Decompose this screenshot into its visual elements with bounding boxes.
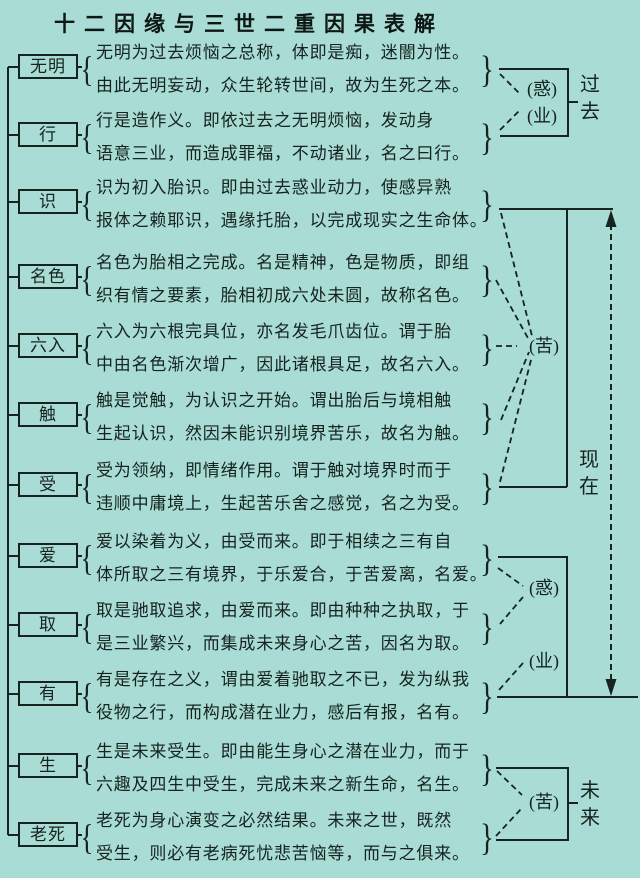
- arrowhead-up-icon: [606, 210, 617, 227]
- desc-line: 由此无明妄动，众生轮转世间，故为生死之本。: [96, 75, 470, 97]
- desc-line: 体所取之三有境界，于乐爱合，于苦爱离，名爱。: [96, 564, 488, 586]
- open-brace-icon: {: [80, 257, 94, 301]
- period-future-label: 未来: [578, 778, 602, 832]
- close-brace-icon: }: [480, 396, 495, 440]
- close-brace-icon: }: [480, 537, 495, 581]
- term-box-sheng: 生: [18, 753, 78, 778]
- dashed-links: [496, 74, 532, 836]
- desc-line: 役物之行，而构成潜在业力，感后有报，名有。: [96, 702, 470, 724]
- desc-line: 受为领纳，即情绪作用。谓于触对境界时而于: [96, 460, 452, 482]
- desc-line: 语意三业，而造成罪福，不动诸业，名之曰行。: [96, 143, 470, 165]
- term-label: 六入: [30, 337, 66, 354]
- desc-line: 无明为过去烦恼之总称，体即是痴，迷闇为性。: [96, 42, 470, 64]
- open-brace-icon: {: [80, 326, 94, 370]
- arrowhead-down-icon: [606, 679, 617, 696]
- desc-line: 是三业繁兴，而集成未来身心之苦，因名为取。: [96, 633, 470, 655]
- close-brace-icon: }: [480, 116, 495, 160]
- desc-line: 织有情之要素，胎相初成六处未圆，故称名色。: [96, 285, 470, 307]
- present-delusion-label: (惑): [518, 577, 570, 599]
- open-brace-icon: {: [80, 465, 94, 509]
- desc-line: 生是未来受生。即由能生身心之潜在业力，而于: [96, 741, 470, 763]
- close-brace-icon: }: [480, 48, 495, 92]
- term-box-laosi: 老死: [18, 822, 78, 847]
- term-box-shou: 受: [18, 472, 78, 497]
- term-box-you: 有: [18, 681, 78, 706]
- page-title: 十二因缘与三世二重因果表解: [54, 8, 444, 38]
- term-label: 爱: [39, 547, 57, 564]
- term-box-liuru: 六入: [18, 333, 78, 358]
- term-label: 无明: [30, 58, 66, 75]
- open-brace-icon: {: [80, 536, 94, 580]
- term-box-mingse: 名色: [18, 264, 78, 289]
- open-brace-icon: {: [80, 395, 94, 439]
- term-box-chu: 触: [18, 402, 78, 427]
- desc-line: 六趣及四生中受生，完成未来之新生命，名生。: [96, 774, 470, 796]
- desc-line: 报体之赖耶识，遇缘托胎，以完成现实之生命体。: [96, 210, 488, 232]
- term-box-ai: 爱: [18, 543, 78, 568]
- term-box-wuming: 无明: [18, 54, 78, 79]
- close-brace-icon: }: [480, 183, 495, 227]
- desc-line: 识为初入胎识。即由过去惑业动力，使感异熟: [96, 177, 452, 199]
- period-present-label: 现在: [577, 447, 601, 501]
- desc-line: 行是造作义。即依过去之无明烦恼，发动身: [96, 110, 434, 132]
- past-karma-label: (业): [516, 105, 568, 127]
- term-box-shi: 识: [18, 189, 78, 214]
- term-label: 生: [39, 757, 57, 774]
- term-label: 识: [39, 193, 57, 210]
- desc-line: 违顺中庸境上，生起苦乐舍之感觉，名之为受。: [96, 493, 470, 515]
- desc-line: 名色为胎相之完成。名是精神，色是物质，即组: [96, 252, 470, 274]
- close-brace-icon: }: [480, 816, 495, 860]
- present-suffering-label: (苦): [518, 335, 570, 357]
- desc-line: 爱以染着为义，由受而来。即于相续之三有自: [96, 531, 452, 553]
- term-label: 老死: [30, 826, 66, 843]
- desc-line: 取是驰取追求，由爱而来。即由种种之执取，于: [96, 600, 470, 622]
- past-delusion-label: (惑): [516, 78, 568, 100]
- desc-line: 六入为六根完具位，亦名发毛爪齿位。谓于胎: [96, 321, 452, 343]
- open-brace-icon: {: [80, 815, 94, 859]
- open-brace-icon: {: [80, 605, 94, 649]
- desc-line: 老死为身心演变之必然结果。未来之世，既然: [96, 810, 452, 832]
- future-suffering-label: (苦): [518, 791, 570, 813]
- term-label: 名色: [30, 268, 66, 285]
- close-brace-icon: }: [480, 606, 495, 650]
- present-karma-label: (业): [518, 650, 570, 672]
- open-brace-icon: {: [80, 674, 94, 718]
- open-brace-icon: {: [80, 115, 94, 159]
- term-box-qu: 取: [18, 612, 78, 637]
- desc-line: 触是觉触，为认识之开始。谓出胎后与境相触: [96, 390, 452, 412]
- period-past-label: 过去: [578, 72, 602, 126]
- open-brace-icon: {: [80, 182, 94, 226]
- term-label: 有: [39, 685, 57, 702]
- term-box-xing: 行: [18, 122, 78, 147]
- close-brace-icon: }: [480, 258, 495, 302]
- open-brace-icon: {: [80, 47, 94, 91]
- term-label: 受: [39, 476, 57, 493]
- term-label: 触: [39, 406, 57, 423]
- desc-line: 中由名色渐次增广，因此诸根具足，故名六入。: [96, 354, 470, 376]
- open-brace-icon: {: [80, 746, 94, 790]
- close-brace-icon: }: [480, 466, 495, 510]
- term-label: 取: [39, 616, 57, 633]
- close-brace-icon: }: [480, 327, 495, 371]
- desc-line: 有是存在之义，谓由爱着驰取之不已，发为纵我: [96, 669, 470, 691]
- desc-line: 受生，则必有老病死忧悲苦恼等，而与之俱来。: [96, 843, 470, 865]
- twelve-nidanas-diagram: 十二因缘与三世二重因果表解 无明 { 无明为过去烦恼之总称，体即是痴，迷闇为性。…: [0, 0, 640, 878]
- close-brace-icon: }: [480, 747, 495, 791]
- term-label: 行: [39, 126, 57, 143]
- desc-line: 生起认识，然因未能识别境界苦乐，故名为触。: [96, 423, 470, 445]
- close-brace-icon: }: [480, 675, 495, 719]
